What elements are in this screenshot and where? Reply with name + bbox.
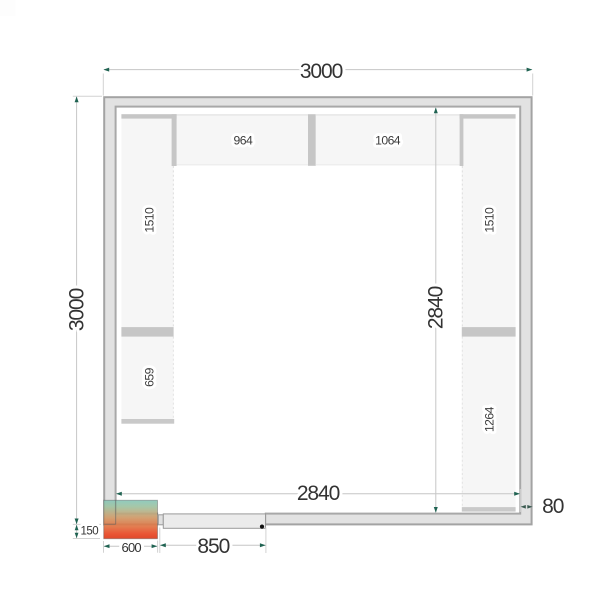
svg-text:1064: 1064 <box>375 133 401 147</box>
svg-text:600: 600 <box>122 540 142 555</box>
svg-text:1510: 1510 <box>143 207 157 233</box>
svg-text:80: 80 <box>542 495 564 518</box>
svg-text:3000: 3000 <box>66 288 89 331</box>
svg-text:2840: 2840 <box>424 286 447 329</box>
svg-text:3000: 3000 <box>300 60 343 83</box>
svg-text:150: 150 <box>80 526 98 538</box>
svg-text:1510: 1510 <box>483 207 497 233</box>
svg-text:1264: 1264 <box>483 406 497 432</box>
svg-text:659: 659 <box>143 367 157 386</box>
svg-text:850: 850 <box>197 535 229 558</box>
svg-text:2840: 2840 <box>297 482 340 505</box>
svg-text:964: 964 <box>234 133 253 147</box>
